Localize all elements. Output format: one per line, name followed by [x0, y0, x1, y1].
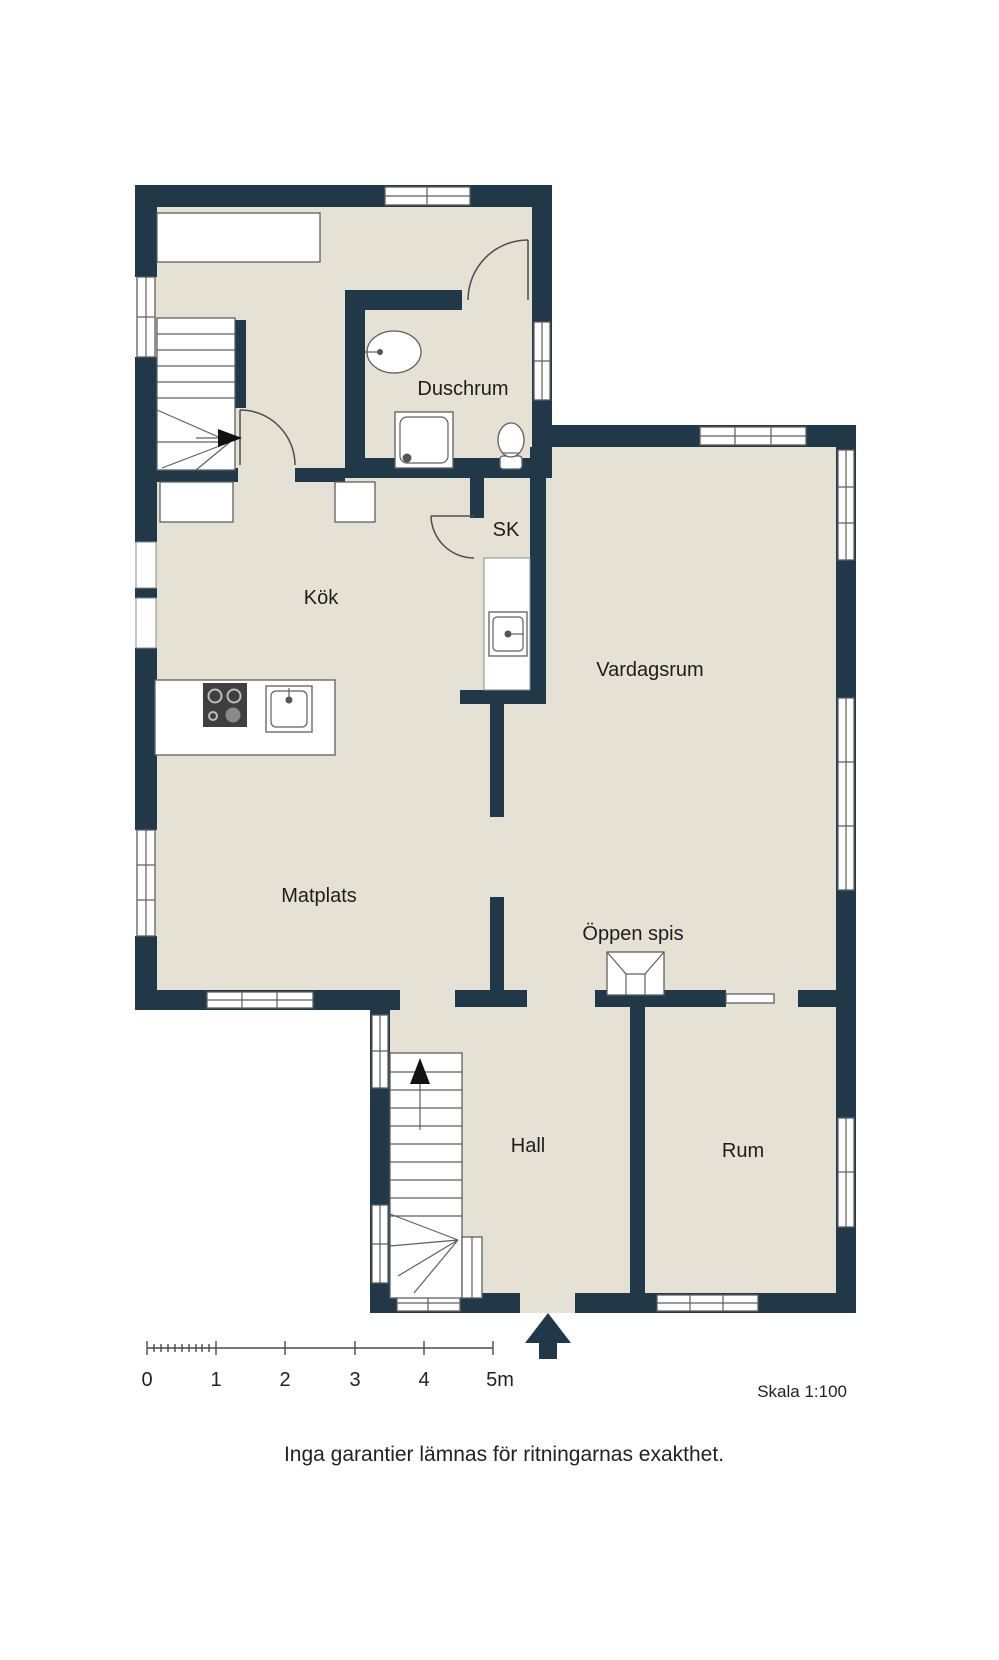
room-label-duschrum: Duschrum [417, 378, 508, 400]
disclaimer-text: Inga garantier lämnas för ritningarnas e… [284, 1443, 724, 1466]
utility-closet [484, 558, 530, 690]
stairs-upper [157, 318, 242, 470]
scale-tick-0: 0 [141, 1369, 152, 1391]
window-right-rum [838, 1118, 854, 1227]
window-right-vardagsrum-2 [838, 698, 854, 890]
cabinet-a [160, 482, 233, 522]
window-left-upper [137, 277, 155, 357]
floor-plan-page: Duschrum SK Kök Vardagsrum Matplats Öppe… [0, 0, 999, 1660]
scale-tick-4: 4 [418, 1369, 429, 1391]
glazed-opening-left-2 [136, 598, 156, 648]
room-label-rum: Rum [722, 1140, 764, 1162]
utility-sink-icon [489, 612, 527, 656]
room-label-matplats: Matplats [281, 885, 357, 907]
scale-tick-5: 5m [486, 1369, 514, 1391]
window-left-matplats [137, 830, 155, 936]
window-top-vardagsrum [700, 427, 806, 445]
window-left-hall-2 [372, 1205, 388, 1283]
window-bottom-rum [657, 1295, 758, 1311]
window-left-hall-1 [372, 1015, 388, 1088]
kitchen-sink-icon [266, 686, 312, 732]
scale-tick-2: 2 [279, 1369, 290, 1391]
room-label-hall: Hall [511, 1135, 545, 1157]
room-label-sk: SK [493, 519, 520, 541]
stove-icon [203, 683, 247, 727]
toilet-icon [498, 423, 524, 469]
room-label-vardagsrum: Vardagsrum [596, 659, 703, 681]
window-duschrum [534, 322, 550, 400]
entrance-opening [520, 1293, 575, 1313]
room-label-kok: Kök [304, 587, 339, 609]
cabinet-b [335, 482, 375, 522]
counter-top [157, 213, 320, 262]
room-label-oppen-spis: Öppen spis [582, 923, 683, 945]
sliding-door-rum [726, 994, 774, 1003]
floor-plan-canvas: Duschrum SK Kök Vardagsrum Matplats Öppe… [0, 0, 999, 1660]
entrance-arrow-icon [525, 1313, 571, 1359]
window-bottom-matplats [207, 992, 313, 1008]
window-right-vardagsrum-1 [838, 450, 854, 560]
scale-tick-1: 1 [210, 1369, 221, 1391]
scale-tick-3: 3 [349, 1369, 360, 1391]
shower-icon [395, 412, 453, 468]
scale-bar: 0 1 2 3 4 5m [141, 1341, 513, 1391]
fireplace-icon [607, 952, 664, 995]
window-top-kitchen [385, 187, 470, 205]
glazed-opening-left-1 [136, 542, 156, 588]
scale-note: Skala 1:100 [757, 1382, 847, 1401]
